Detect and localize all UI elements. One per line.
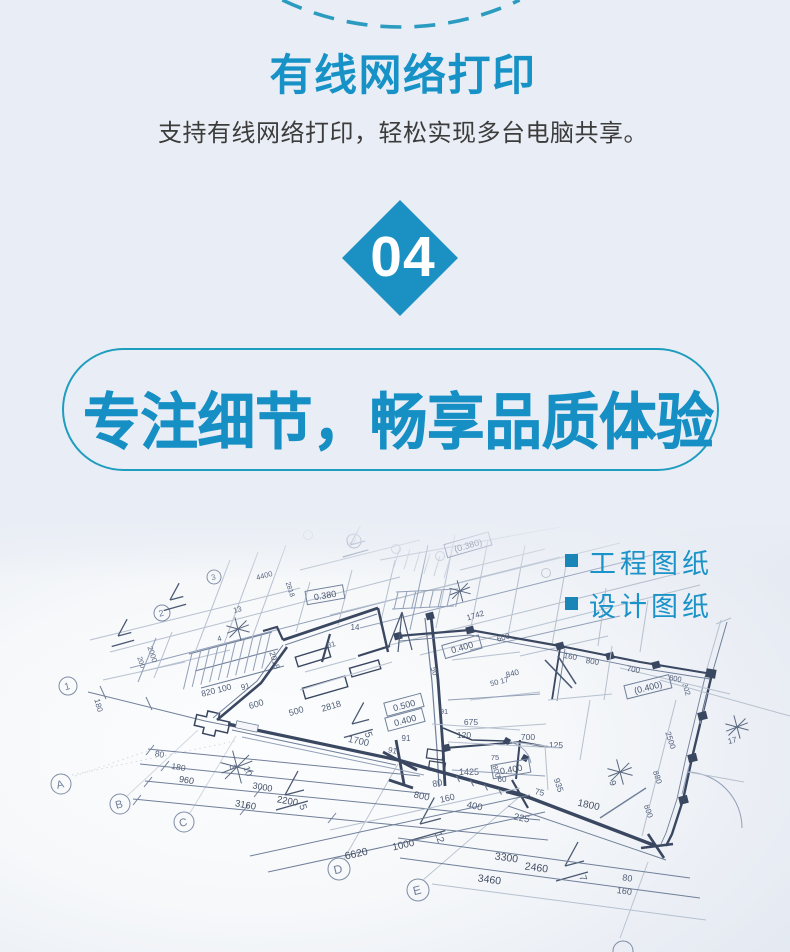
svg-text:75: 75 <box>491 753 499 762</box>
svg-text:14: 14 <box>351 623 360 632</box>
svg-text:91: 91 <box>402 734 411 743</box>
svg-text:80: 80 <box>154 748 165 760</box>
svg-text:125: 125 <box>549 740 563 750</box>
svg-text:700: 700 <box>521 732 535 742</box>
svg-text:80: 80 <box>622 872 633 883</box>
svg-text:120: 120 <box>457 730 471 740</box>
svg-text:91: 91 <box>440 707 448 716</box>
svg-text:675: 675 <box>464 717 478 727</box>
svg-text:160: 160 <box>616 885 632 897</box>
